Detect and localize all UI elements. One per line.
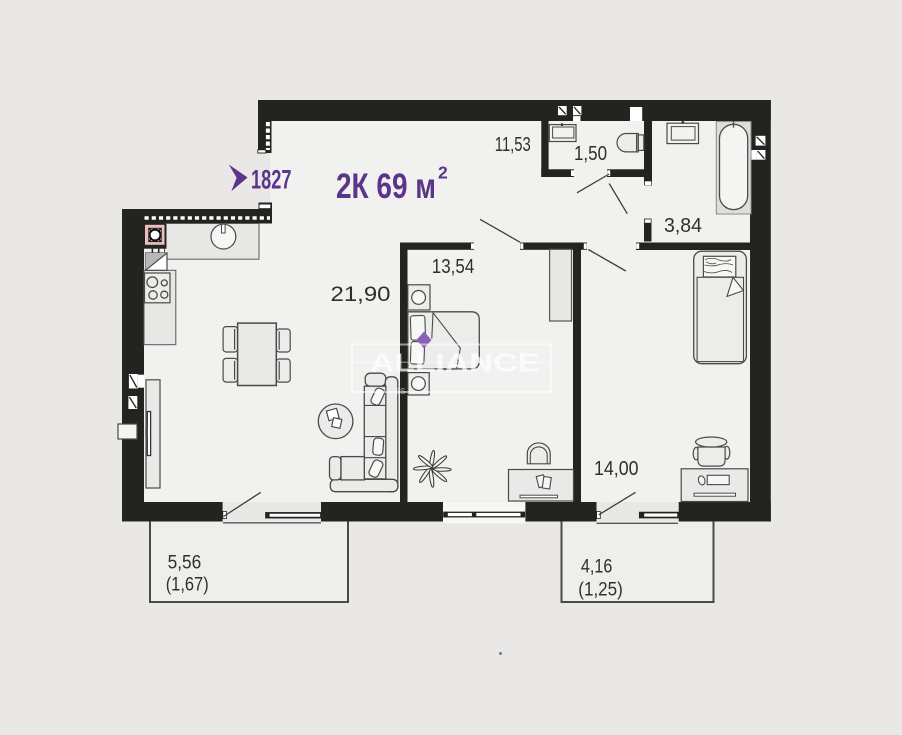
svg-text:5,56: 5,56: [168, 553, 202, 574]
svg-text:4,16: 4,16: [581, 556, 612, 577]
svg-text:(1,67): (1,67): [166, 575, 209, 596]
svg-text:es: es: [394, 385, 406, 397]
svg-text:3,84: 3,84: [664, 215, 702, 237]
svg-text:14,00: 14,00: [594, 458, 639, 480]
svg-text:1827: 1827: [251, 165, 292, 195]
svg-text:21,90: 21,90: [331, 282, 391, 306]
svg-text:13,54: 13,54: [432, 256, 475, 278]
svg-text:2К 69 м: 2К 69 м: [336, 167, 436, 206]
svg-text:(1,25): (1,25): [578, 580, 623, 601]
svg-text:ALLIANCE: ALLIANCE: [370, 348, 540, 378]
svg-text:1,50: 1,50: [574, 143, 607, 165]
svg-text:2: 2: [438, 162, 448, 182]
svg-text:11,53: 11,53: [495, 134, 531, 156]
